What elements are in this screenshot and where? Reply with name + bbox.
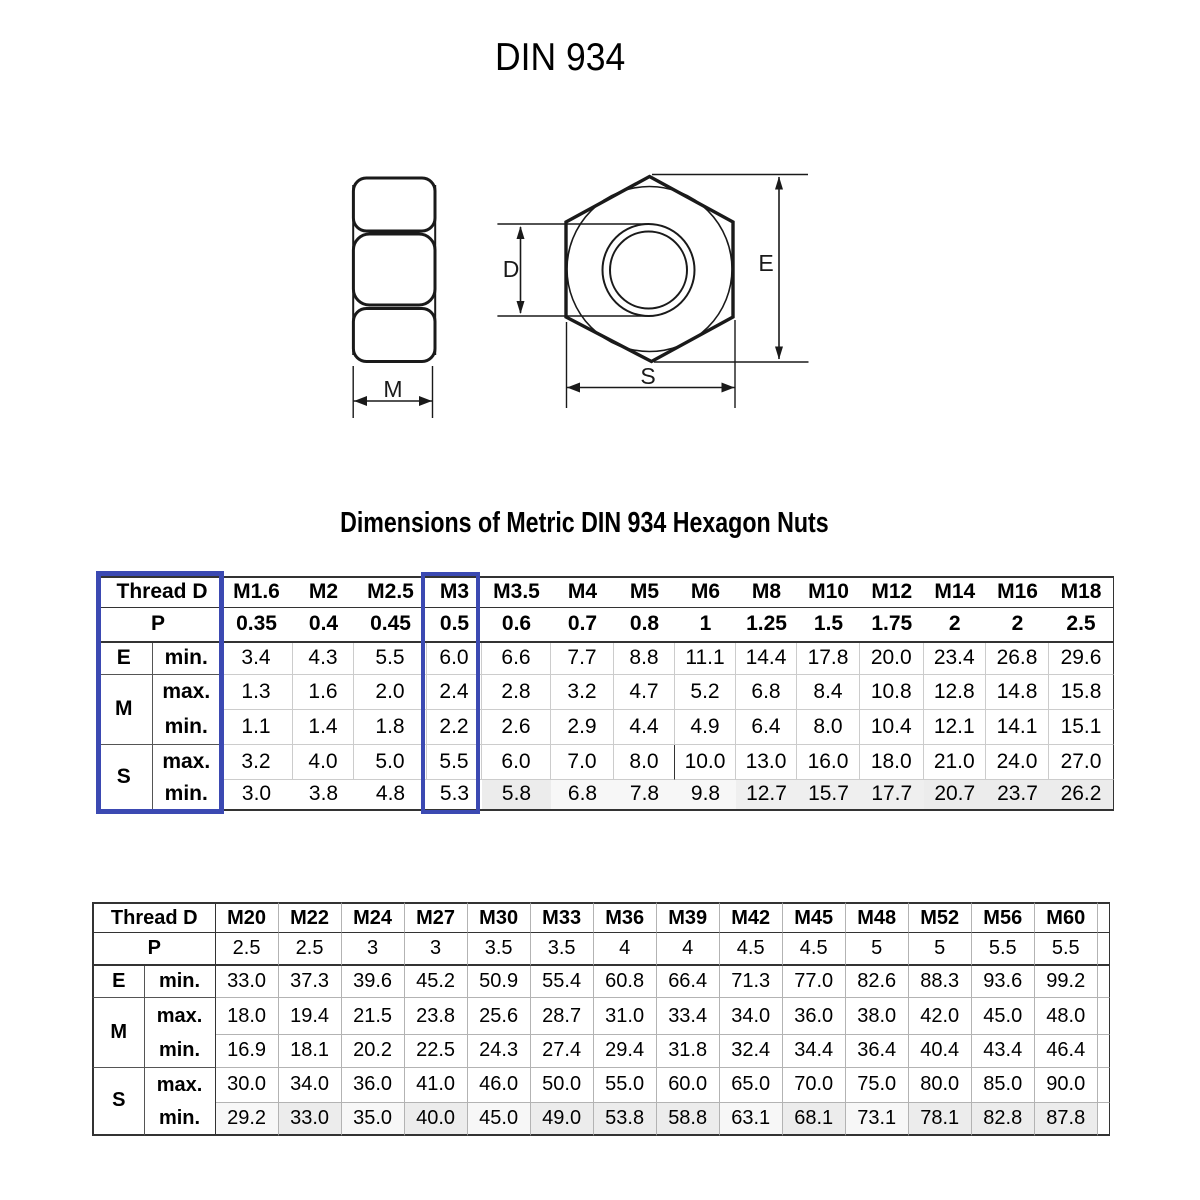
svg-text:S: S	[640, 363, 655, 389]
svg-text:D: D	[503, 256, 520, 282]
svg-text:E: E	[758, 250, 773, 276]
svg-text:M: M	[383, 376, 402, 402]
